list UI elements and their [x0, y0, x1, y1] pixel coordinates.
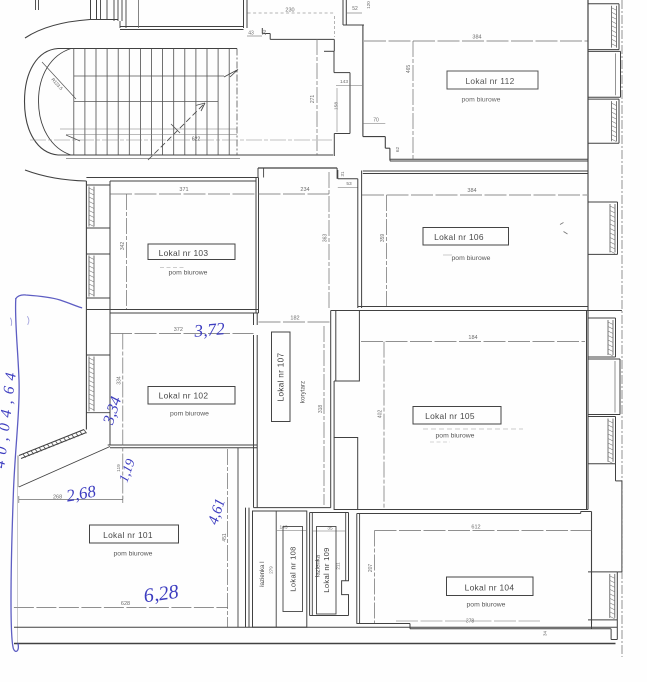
svg-text:30: 30 — [262, 30, 268, 36]
svg-text:Lokal nr 104: Lokal nr 104 — [465, 583, 515, 593]
svg-text:465: 465 — [406, 65, 412, 74]
svg-text:271: 271 — [310, 95, 316, 104]
svg-text:143: 143 — [279, 525, 287, 531]
svg-text:402: 402 — [378, 410, 384, 419]
svg-text:207: 207 — [368, 564, 374, 573]
svg-text:384: 384 — [472, 35, 481, 41]
svg-text:korytarz: korytarz — [300, 381, 307, 403]
svg-text:62: 62 — [395, 147, 401, 153]
svg-text:Lokal nr 109: Lokal nr 109 — [322, 547, 331, 592]
svg-text:612: 612 — [471, 525, 480, 531]
svg-text:pom biurowe: pom biurowe — [462, 97, 501, 104]
svg-text:279: 279 — [269, 566, 274, 574]
svg-text:Lokal nr 107: Lokal nr 107 — [277, 353, 286, 402]
svg-text:pom biurowe: pom biurowe — [170, 411, 209, 418]
svg-text:211: 211 — [336, 562, 341, 570]
svg-text:628: 628 — [121, 601, 130, 607]
svg-text:372: 372 — [174, 327, 183, 333]
svg-text:378: 378 — [466, 619, 475, 625]
svg-text:230: 230 — [285, 8, 294, 14]
svg-text:363: 363 — [323, 234, 329, 243]
svg-text:Lokal nr 106: Lokal nr 106 — [434, 232, 484, 242]
svg-text:Lokal nr 101: Lokal nr 101 — [103, 530, 153, 540]
svg-text:143: 143 — [340, 79, 348, 85]
svg-text:384: 384 — [467, 188, 476, 194]
svg-text:359: 359 — [380, 234, 386, 243]
svg-text:31: 31 — [340, 171, 345, 177]
svg-text:371: 371 — [179, 187, 188, 193]
svg-text:234: 234 — [300, 187, 309, 193]
svg-text:158: 158 — [334, 102, 340, 110]
svg-text:70: 70 — [373, 118, 379, 124]
svg-text:43: 43 — [248, 31, 254, 37]
svg-text:622: 622 — [192, 137, 201, 143]
svg-text:53: 53 — [346, 181, 352, 187]
svg-text:451: 451 — [222, 533, 228, 542]
svg-text:pom biurowe: pom biurowe — [169, 270, 208, 277]
svg-text:120: 120 — [366, 1, 371, 9]
svg-text:pom biurowe: pom biurowe — [114, 551, 153, 558]
svg-text:34: 34 — [543, 631, 548, 637]
svg-text:Lokal nr 112: Lokal nr 112 — [465, 76, 514, 86]
svg-text:pom biurowe: pom biurowe — [452, 255, 491, 262]
svg-text:3,72: 3,72 — [192, 318, 225, 341]
svg-text:Lokal nr 102: Lokal nr 102 — [159, 391, 209, 401]
svg-text:Lokal nr 108: Lokal nr 108 — [289, 546, 298, 591]
svg-text:pom biurowe: pom biurowe — [467, 602, 506, 609]
svg-text:Lokal nr 103: Lokal nr 103 — [159, 248, 209, 258]
svg-text:Lokal nr 105: Lokal nr 105 — [425, 411, 475, 421]
svg-text:52: 52 — [352, 6, 358, 12]
svg-text:334: 334 — [116, 376, 122, 385]
svg-text:łazienka I: łazienka I — [260, 561, 266, 587]
svg-text:pom biurowe: pom biurowe — [436, 433, 475, 440]
svg-text:184: 184 — [468, 335, 477, 341]
svg-text:342: 342 — [120, 242, 126, 251]
svg-text:318: 318 — [318, 405, 324, 414]
svg-text:182: 182 — [290, 316, 299, 322]
